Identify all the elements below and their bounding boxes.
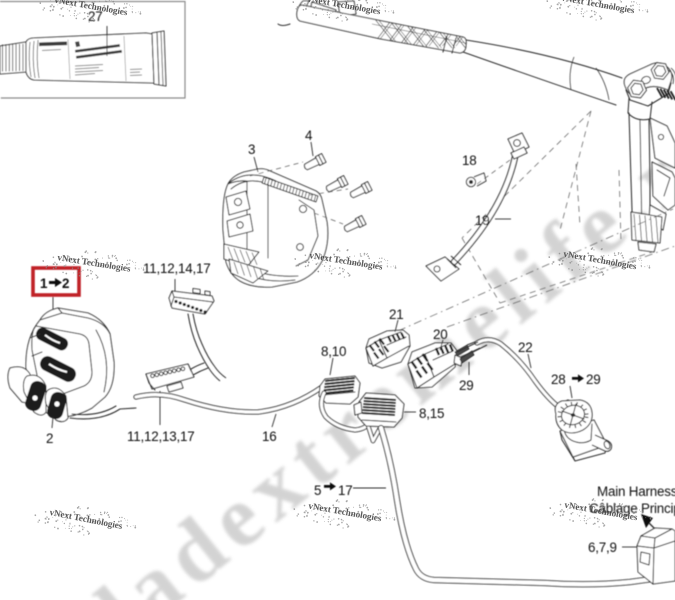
svg-text:8,10: 8,10 <box>321 344 346 359</box>
svg-text:20: 20 <box>433 327 448 342</box>
svg-text:11,12,14,17: 11,12,14,17 <box>143 261 211 276</box>
svg-text:16: 16 <box>262 429 277 444</box>
svg-text:1: 1 <box>40 276 48 291</box>
svg-text:6,7,9: 6,7,9 <box>588 540 617 555</box>
svg-text:28: 28 <box>551 372 566 387</box>
svg-text:11,12,13,17: 11,12,13,17 <box>127 429 195 444</box>
svg-text:8,15: 8,15 <box>419 406 444 421</box>
svg-text:3: 3 <box>248 142 255 157</box>
svg-text:21: 21 <box>389 307 404 322</box>
svg-text:Main Harness: Main Harness <box>597 484 675 499</box>
svg-text:22: 22 <box>518 340 533 355</box>
svg-text:2: 2 <box>46 431 53 446</box>
svg-text:29: 29 <box>459 378 474 393</box>
svg-text:29: 29 <box>586 372 601 387</box>
svg-text:5: 5 <box>314 483 321 498</box>
svg-text:18: 18 <box>462 153 477 168</box>
svg-text:19: 19 <box>475 213 490 228</box>
svg-text:17: 17 <box>338 483 353 498</box>
svg-text:2: 2 <box>62 276 69 291</box>
svg-text:4: 4 <box>305 128 313 143</box>
